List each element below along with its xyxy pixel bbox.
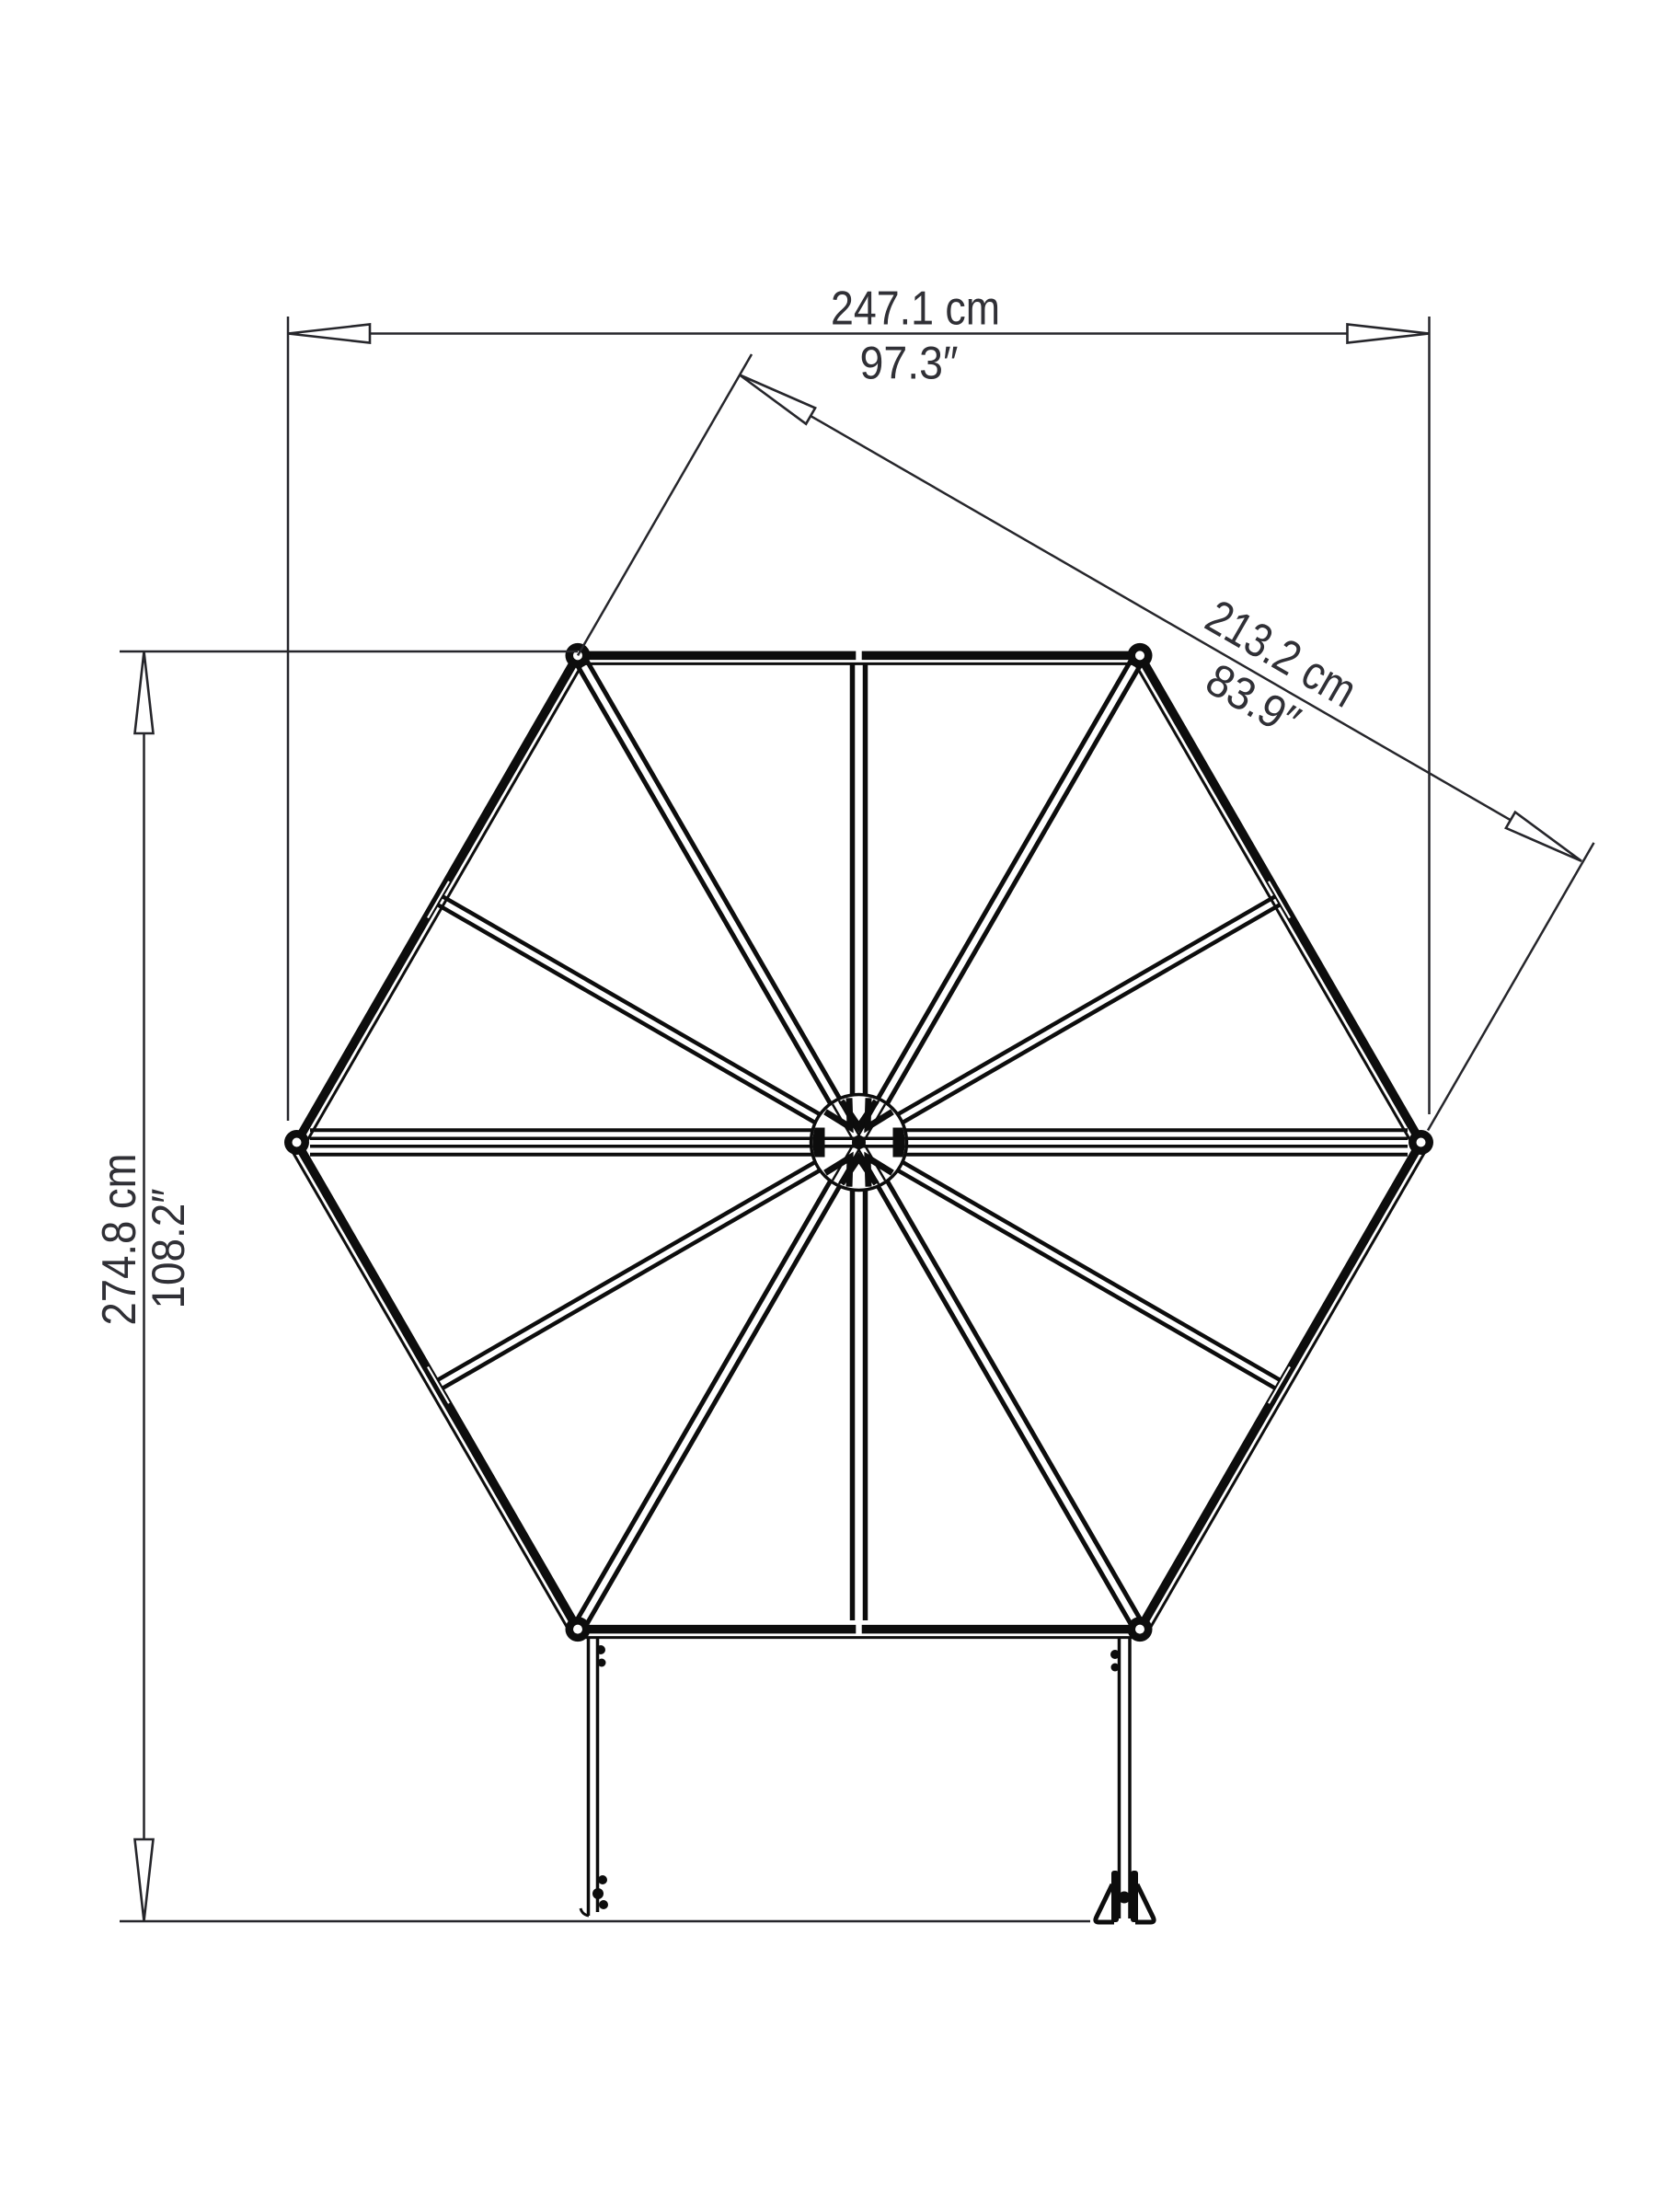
svg-text:108.2″: 108.2″ — [143, 1189, 194, 1309]
svg-text:247.1 cm: 247.1 cm — [831, 282, 1000, 336]
svg-text:97.3″: 97.3″ — [860, 338, 959, 389]
svg-text:274.8 cm: 274.8 cm — [93, 1154, 146, 1326]
